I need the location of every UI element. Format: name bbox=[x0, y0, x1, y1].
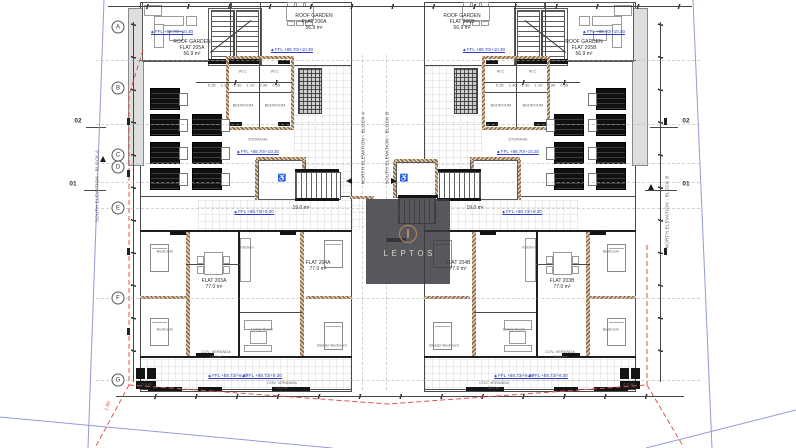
store-room bbox=[620, 368, 629, 379]
level-marker: ◆ FFL +88.70/+10.30 bbox=[463, 47, 505, 53]
dimension-string: 5.35 1.30 2.30 1.10 2.30 0.55 bbox=[208, 83, 280, 88]
section-label-02-left: 02 bbox=[74, 118, 81, 125]
wall bbox=[259, 59, 260, 127]
sofa bbox=[612, 24, 622, 48]
level-diamond-icon: ◆ bbox=[494, 374, 497, 378]
room-label-wc: W.C. bbox=[271, 70, 280, 75]
road-line-right bbox=[646, 410, 796, 448]
flat-label: FLAT 204A 77.0 m² bbox=[306, 260, 331, 272]
level-text: FFL +88.70/+10.30 bbox=[275, 47, 313, 52]
stair-landing bbox=[398, 195, 438, 198]
wall bbox=[516, 59, 517, 127]
dining-table bbox=[553, 252, 572, 275]
wall-hatched bbox=[226, 56, 294, 59]
elevation-arrow-icon bbox=[391, 178, 397, 184]
pv-panel bbox=[596, 114, 626, 136]
room-label-living: Living Room bbox=[251, 328, 273, 333]
section-label-01-right: 01 bbox=[682, 181, 689, 188]
chair bbox=[223, 266, 230, 274]
wall bbox=[545, 2, 546, 60]
pv-panel bbox=[554, 168, 584, 190]
wall-heavy bbox=[140, 356, 352, 358]
roof-garden-label: ROOF GARDEN FLAT 205B 56.9 m² bbox=[565, 39, 602, 57]
label-line: 56.9 m² bbox=[173, 51, 210, 57]
veranda-label: COV. VERANDA 15.0 m² bbox=[545, 350, 575, 360]
level-text: FFL +88.70/+10.30 bbox=[155, 29, 193, 34]
dimension-line-right bbox=[658, 22, 663, 382]
pv-panel bbox=[150, 168, 180, 190]
elevation-label-left: SOUTH ELEVATION - BLOCK A bbox=[95, 150, 100, 222]
store-room bbox=[136, 368, 145, 379]
level-marker: ◆ FFL +88.70/+10.30 bbox=[237, 149, 279, 155]
level-text: FFL +88.73/+9.30 bbox=[246, 373, 282, 378]
pv-panel bbox=[596, 168, 626, 190]
level-text: FFL +88.73/+9.30 bbox=[238, 209, 274, 214]
wall-heavy bbox=[424, 356, 636, 358]
grid-line-vertical bbox=[362, 55, 363, 390]
pv-panel bbox=[150, 114, 180, 136]
level-diamond-icon: ◆ bbox=[234, 210, 237, 214]
level-diamond-icon: ◆ bbox=[237, 150, 240, 154]
store-room bbox=[147, 368, 156, 379]
grid-bubble-a: A bbox=[112, 21, 125, 34]
wall-heavy bbox=[198, 387, 222, 391]
grid-bubble-d: D bbox=[112, 161, 125, 174]
elevation-arrow-icon bbox=[346, 178, 352, 184]
chair bbox=[197, 256, 204, 264]
label-line: 56.9 m² bbox=[565, 51, 602, 57]
wall bbox=[240, 312, 302, 313]
wall-hatched bbox=[255, 160, 258, 200]
grid-line bbox=[96, 163, 700, 164]
veranda-label: COV. VERANDA 15.0 m² bbox=[479, 381, 509, 391]
label-line: 15.0 m² bbox=[545, 355, 575, 360]
pv-panel bbox=[192, 168, 222, 190]
level-marker: ◆ FFL +88.73/+9.30 bbox=[494, 373, 534, 379]
area-label: 19.0 m² bbox=[293, 205, 310, 211]
pv-panel bbox=[192, 142, 222, 164]
grid-letter: E bbox=[116, 205, 120, 211]
grid-line bbox=[96, 60, 700, 61]
wheelchair-icon: ♿ bbox=[278, 174, 287, 182]
tv-unit bbox=[244, 345, 272, 352]
store-room bbox=[631, 368, 640, 379]
room-label-wc: W.C. bbox=[497, 70, 506, 75]
section-tick bbox=[650, 127, 678, 128]
grid-line bbox=[96, 298, 700, 299]
wall-hatched bbox=[482, 127, 550, 130]
grid-letter: F bbox=[116, 295, 120, 301]
chair bbox=[481, 21, 489, 26]
section-arrow-icon bbox=[100, 156, 106, 162]
room-label-kitchen: Kitchen bbox=[522, 246, 535, 251]
section-label-01-left: 01 bbox=[69, 181, 76, 188]
wall-hatched bbox=[256, 157, 306, 160]
level-text: FFL +88.73/+9.30 bbox=[532, 373, 568, 378]
room-label-master: Master Bedroom bbox=[317, 344, 347, 349]
dimension-line-top bbox=[108, 4, 692, 9]
level-marker: ◆ FFL +88.70/+10.30 bbox=[151, 29, 193, 35]
watermark: LEPTOS bbox=[366, 199, 450, 284]
stair-treads bbox=[435, 172, 481, 200]
level-marker: ◆ FFL +88.70/+10.30 bbox=[271, 47, 313, 53]
wall-hatched bbox=[472, 232, 476, 358]
grid-line bbox=[96, 124, 700, 125]
road-line-left bbox=[0, 417, 332, 448]
pv-panel bbox=[150, 88, 180, 110]
level-diamond-icon: ◆ bbox=[497, 150, 500, 154]
level-diamond-icon: ◆ bbox=[242, 374, 245, 378]
room-label-storage: STORAGE bbox=[248, 138, 268, 143]
dimension-text-mark bbox=[127, 328, 130, 335]
level-diamond-icon: ◆ bbox=[583, 30, 586, 34]
section-label-02-right: 02 bbox=[682, 118, 689, 125]
level-marker: ◆ FFL +88.70/+10.30 bbox=[497, 149, 539, 155]
area-label: 6.3 m² bbox=[623, 383, 634, 388]
pv-panel bbox=[192, 114, 222, 136]
label-line: 15.0 m² bbox=[201, 355, 231, 360]
pv-panel bbox=[150, 142, 180, 164]
coffee-table bbox=[250, 331, 267, 344]
wardrobe bbox=[590, 231, 606, 235]
room-label-bedroom: BEDROOM bbox=[491, 104, 512, 109]
room-label-kitchen: Kitchen bbox=[240, 246, 253, 251]
wardrobe bbox=[480, 231, 496, 235]
dimension-text-mark bbox=[127, 118, 130, 125]
room-label-wc: W.C. bbox=[239, 70, 248, 75]
wall-hatched bbox=[291, 56, 294, 130]
room-label-bedroom: BEDROOM bbox=[233, 104, 254, 109]
chair bbox=[546, 266, 553, 274]
label-line: 56.9 m² bbox=[443, 25, 480, 31]
level-diamond-icon: ◆ bbox=[463, 48, 466, 52]
dimension-string: 5.35 1.30 2.30 1.10 2.30 0.55 bbox=[496, 83, 568, 88]
boundary-dimension: 1.80 bbox=[104, 400, 113, 411]
room-label-master: Master Bedroom bbox=[429, 344, 459, 349]
chair bbox=[223, 256, 230, 264]
stair-landing bbox=[437, 169, 481, 172]
room-label-bedroom: BEDROOM bbox=[523, 104, 544, 109]
dimension-line-left bbox=[131, 22, 136, 382]
roof-garden-label: ROOF GARDEN FLAT 206B 56.9 m² bbox=[443, 13, 480, 31]
armchair bbox=[579, 16, 590, 26]
wall-hatched bbox=[186, 232, 190, 358]
section-tick bbox=[86, 127, 106, 128]
label-line: 15.0 m² bbox=[479, 386, 509, 391]
wheelchair-icon: ♿ bbox=[400, 174, 409, 182]
grid-letter: G bbox=[116, 377, 121, 383]
chair bbox=[572, 266, 579, 274]
level-text: FFL +88.70/+10.30 bbox=[241, 149, 279, 154]
flat-label: FLAT 203A 77.0 m² bbox=[202, 278, 227, 290]
grid-letter: D bbox=[116, 164, 120, 170]
stair-treads bbox=[236, 10, 259, 60]
dimension-text-mark bbox=[127, 248, 130, 255]
label-line: 77.0 m² bbox=[202, 284, 227, 290]
level-text: FFL +88.73/+9.30 bbox=[506, 209, 542, 214]
level-marker: ◆ FFL +88.73/+9.30 bbox=[234, 209, 274, 215]
level-diamond-icon: ◆ bbox=[151, 30, 154, 34]
level-text: FFL +88.70/+10.30 bbox=[467, 47, 505, 52]
pv-panel bbox=[554, 114, 584, 136]
elevation-label-right: NORTH ELEVATION - BLOCK B bbox=[665, 176, 670, 249]
room-label-living: Living Room bbox=[503, 328, 525, 333]
flat-label: FLAT 203B 77.0 m² bbox=[550, 278, 575, 290]
roof-garden-label: ROOF GARDEN FLAT 205A 56.9 m² bbox=[173, 39, 210, 57]
wall-hatched bbox=[518, 160, 521, 200]
wall bbox=[474, 312, 536, 313]
room-label-bed: Bedroom bbox=[157, 250, 173, 255]
wardrobe bbox=[170, 231, 186, 235]
watermark-logo-icon bbox=[399, 225, 417, 243]
wall bbox=[229, 92, 291, 93]
section-arrow-icon bbox=[648, 184, 654, 190]
grid-letter: C bbox=[116, 152, 120, 158]
wall-hatched bbox=[470, 157, 520, 160]
elevation-label-center-a: NORTH ELEVATION - BLOCK A bbox=[361, 112, 366, 185]
wall bbox=[485, 92, 547, 93]
level-marker: ◆ FFL +88.70/+10.30 bbox=[583, 29, 625, 35]
level-marker: ◆ FFL +88.73/+9.30 bbox=[502, 209, 542, 215]
label-line: 15.0 m² bbox=[267, 386, 297, 391]
pv-panel bbox=[554, 142, 584, 164]
level-text: FFL +88.70/+10.30 bbox=[587, 29, 625, 34]
pv-panel bbox=[596, 142, 626, 164]
grid-bubble-b: B bbox=[112, 82, 125, 95]
area-label: 6.3 m² bbox=[141, 383, 152, 388]
grid-bubble-e: E bbox=[112, 202, 125, 215]
wall bbox=[230, 2, 231, 60]
level-marker: ◆ FFL +88.73/+9.30 bbox=[242, 373, 282, 379]
level-diamond-icon: ◆ bbox=[271, 48, 274, 52]
dimension-line-bottom bbox=[116, 394, 684, 399]
floor-plan-canvas: A B C D E F G 02 01 02 01 SOUTH ELEVATIO… bbox=[0, 0, 796, 448]
chair bbox=[572, 256, 579, 264]
level-text: FFL +88.70/+10.30 bbox=[501, 149, 539, 154]
elevation-label-center-b: SOUTH ELEVATION - BLOCK B bbox=[385, 112, 390, 185]
chair bbox=[287, 21, 295, 26]
room-label-bed: Bedroom bbox=[157, 328, 173, 333]
wall-hatched bbox=[300, 232, 304, 358]
level-diamond-icon: ◆ bbox=[502, 210, 505, 214]
sofa bbox=[154, 24, 164, 48]
grid-line bbox=[96, 380, 700, 381]
room-label-storage: STORAGE bbox=[508, 138, 528, 143]
wall-hatched bbox=[586, 232, 590, 358]
tv-unit bbox=[504, 345, 532, 352]
room-label-bedroom: BEDROOM bbox=[265, 104, 286, 109]
roof-garden-label: ROOF GARDEN FLAT 206A 56.9 m² bbox=[295, 13, 332, 31]
wall-heavy bbox=[554, 387, 578, 391]
level-text: FFL +88.73/+9.30 bbox=[498, 373, 534, 378]
wall-hatched bbox=[394, 159, 438, 162]
wall-hatched bbox=[482, 56, 485, 130]
grid-bubble-f: F bbox=[112, 292, 125, 305]
dimension-text-mark bbox=[664, 248, 667, 255]
room-label-bed: Bedroom bbox=[603, 328, 619, 333]
planter-strip bbox=[632, 8, 648, 166]
stair-treads bbox=[517, 10, 540, 60]
wardrobe bbox=[280, 231, 296, 235]
wall-heavy bbox=[536, 232, 538, 358]
level-diamond-icon: ◆ bbox=[208, 374, 211, 378]
armchair bbox=[186, 16, 197, 26]
label-line: 77.0 m² bbox=[550, 284, 575, 290]
dimension-text-mark bbox=[127, 170, 130, 177]
veranda-label: COV. VERANDA 15.0 m² bbox=[267, 381, 297, 391]
grid-letter: A bbox=[116, 24, 120, 30]
grid-line bbox=[96, 182, 700, 183]
pv-panel bbox=[596, 88, 626, 110]
label-line: 77.0 m² bbox=[306, 266, 331, 272]
veranda-label: COV. VERANDA 15.0 m² bbox=[201, 350, 231, 360]
veranda-floor bbox=[198, 200, 352, 230]
dining-table bbox=[204, 252, 223, 275]
coffee-table bbox=[509, 331, 526, 344]
stair-landing bbox=[295, 169, 339, 172]
room-label-bed: Bedroom bbox=[603, 250, 619, 255]
watermark-brand: LEPTOS bbox=[380, 249, 436, 258]
area-label: 19.0 m² bbox=[467, 205, 484, 211]
wall-hatched bbox=[435, 162, 438, 198]
wall-hatched bbox=[226, 127, 294, 130]
room-label-wc: W.C. bbox=[529, 70, 538, 75]
grid-bubble-g: G bbox=[112, 374, 125, 387]
chair bbox=[546, 256, 553, 264]
stair-treads bbox=[295, 172, 341, 200]
dimension-text-mark bbox=[664, 118, 667, 125]
label-line: 56.9 m² bbox=[295, 25, 332, 31]
chair bbox=[197, 266, 204, 274]
grid-letter: B bbox=[116, 85, 120, 91]
